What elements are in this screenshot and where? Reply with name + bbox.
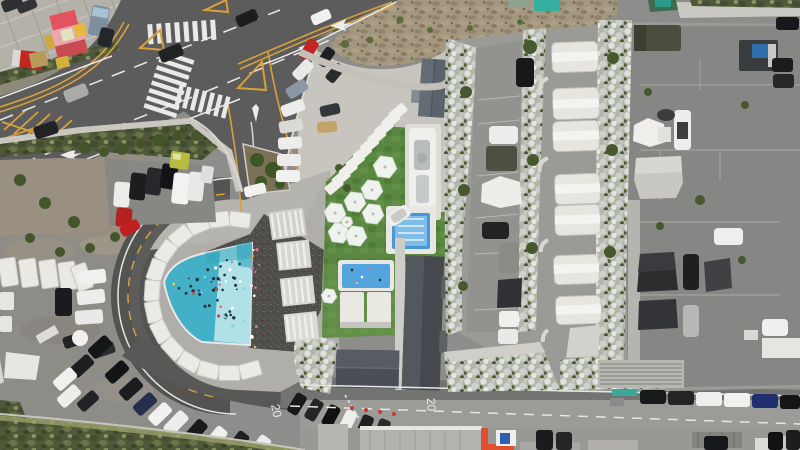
svg-text:20: 20 [424, 398, 438, 412]
